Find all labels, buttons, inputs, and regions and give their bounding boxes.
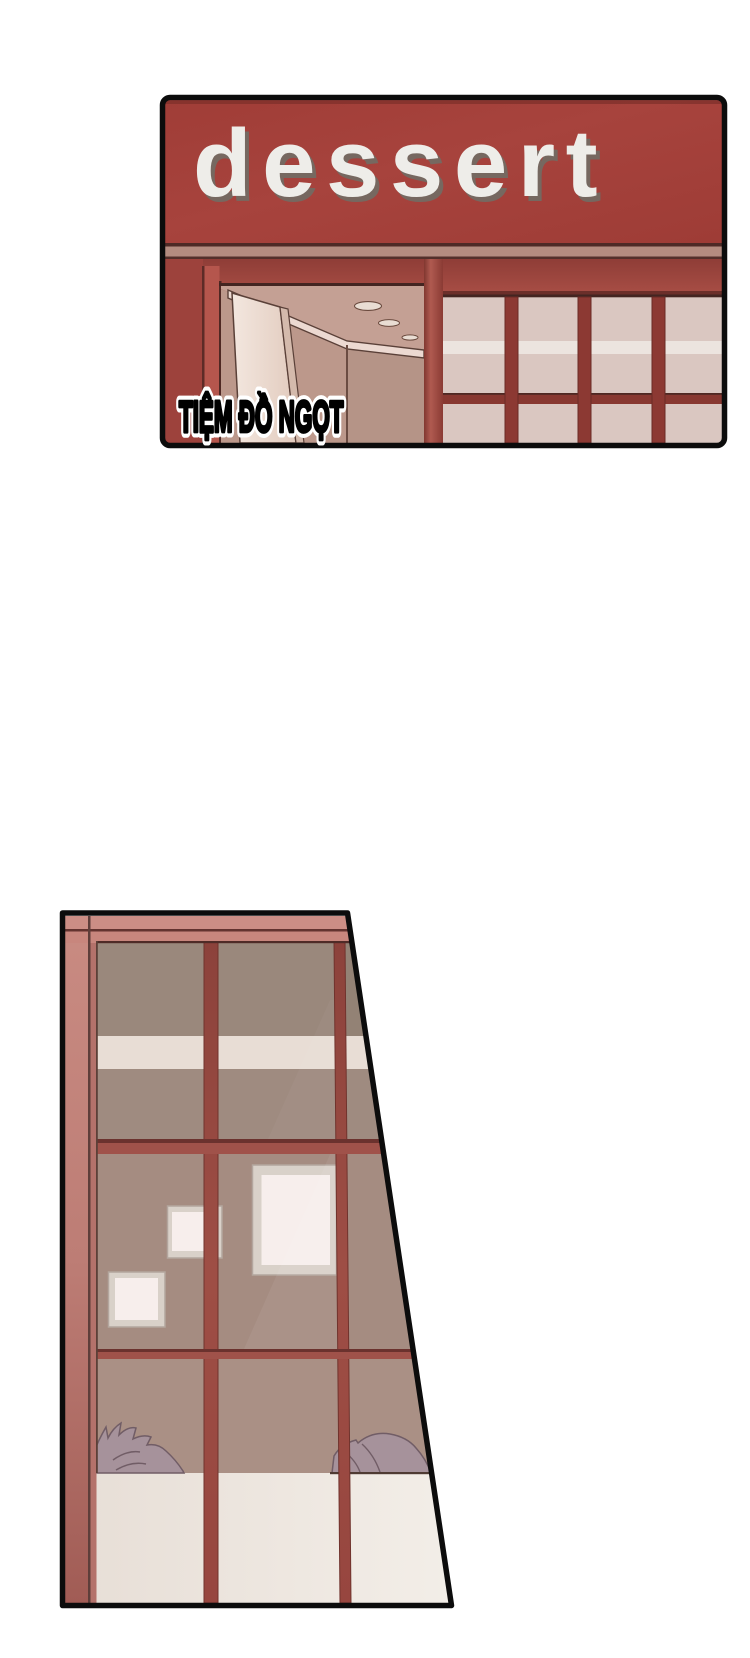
svg-text:dessert: dessert: [193, 110, 608, 217]
svg-text:TIỆM ĐỒ NGỌT: TIỆM ĐỒ NGỌT: [179, 391, 343, 441]
